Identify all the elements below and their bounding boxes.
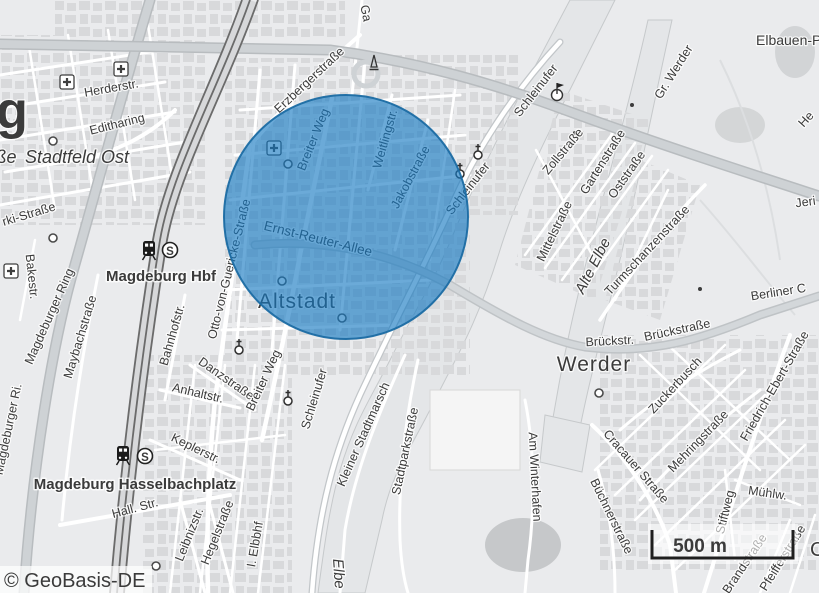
place-label-fragment: C [810,539,819,561]
scale-bar-label: 500 m [673,536,727,557]
radius-overlay [224,95,468,339]
sbahn-icon [163,243,178,258]
hospital-icon [114,62,128,76]
attribution-link[interactable]: © GeoBasis-DE [4,570,145,592]
hospital-icon [60,75,74,89]
winterhafen-basin [540,415,590,472]
poi-icon [595,389,603,397]
sbahn-icon [138,449,153,464]
attribution: © GeoBasis-DE [0,566,152,593]
water-label: Elbe [329,558,348,589]
dot-icon [698,287,702,291]
map-svg[interactable]: S [0,0,819,593]
street-label: Brückstr. [585,333,634,350]
station-label: Magdeburg Hasselbachplatz [34,476,237,493]
street-label-fragment: ße [0,147,17,167]
hospital-icon [4,264,18,278]
city-label-fragment: g [0,82,28,140]
map-viewport[interactable]: S [0,0,819,593]
poi-icon [49,137,57,145]
poi-icon [49,234,57,242]
district-label: Werder [557,353,631,376]
dot-icon [630,103,634,107]
poi-icon [152,562,160,570]
district-label: Stadtfeld Ost [25,147,130,167]
scale-bar: 500 m [648,524,798,564]
station-label: Magdeburg Hbf [106,268,217,285]
street-label: Jeri [794,194,816,211]
area-label: Elbauen-P [756,32,819,48]
